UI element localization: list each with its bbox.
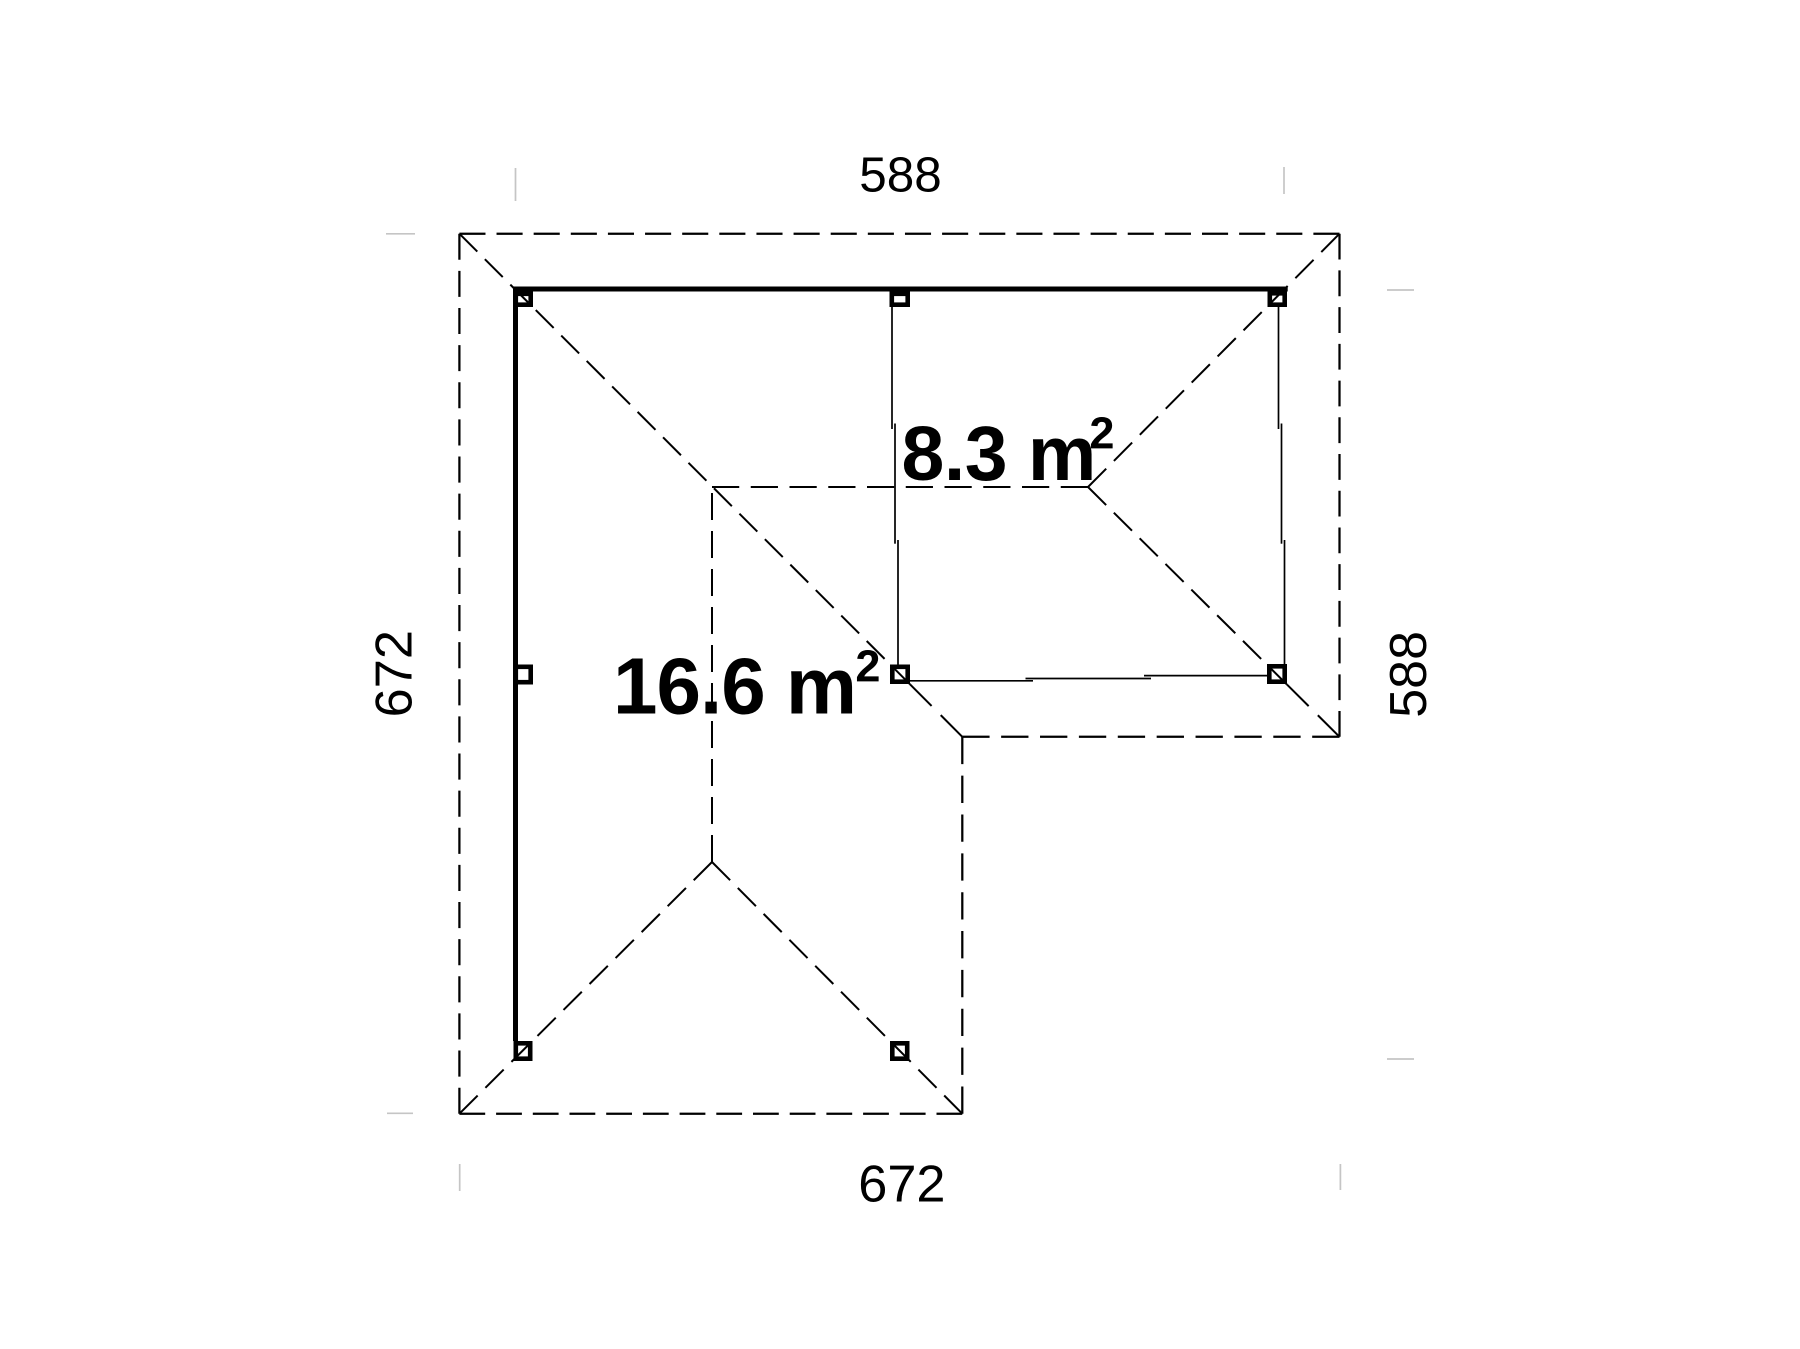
svg-text:588: 588	[859, 148, 941, 203]
svg-text:16.6 m: 16.6 m	[613, 641, 856, 730]
svg-text:588: 588	[1380, 631, 1438, 718]
svg-text:672: 672	[858, 1156, 945, 1214]
svg-text:8.3 m: 8.3 m	[902, 411, 1096, 497]
svg-text:672: 672	[366, 630, 424, 717]
